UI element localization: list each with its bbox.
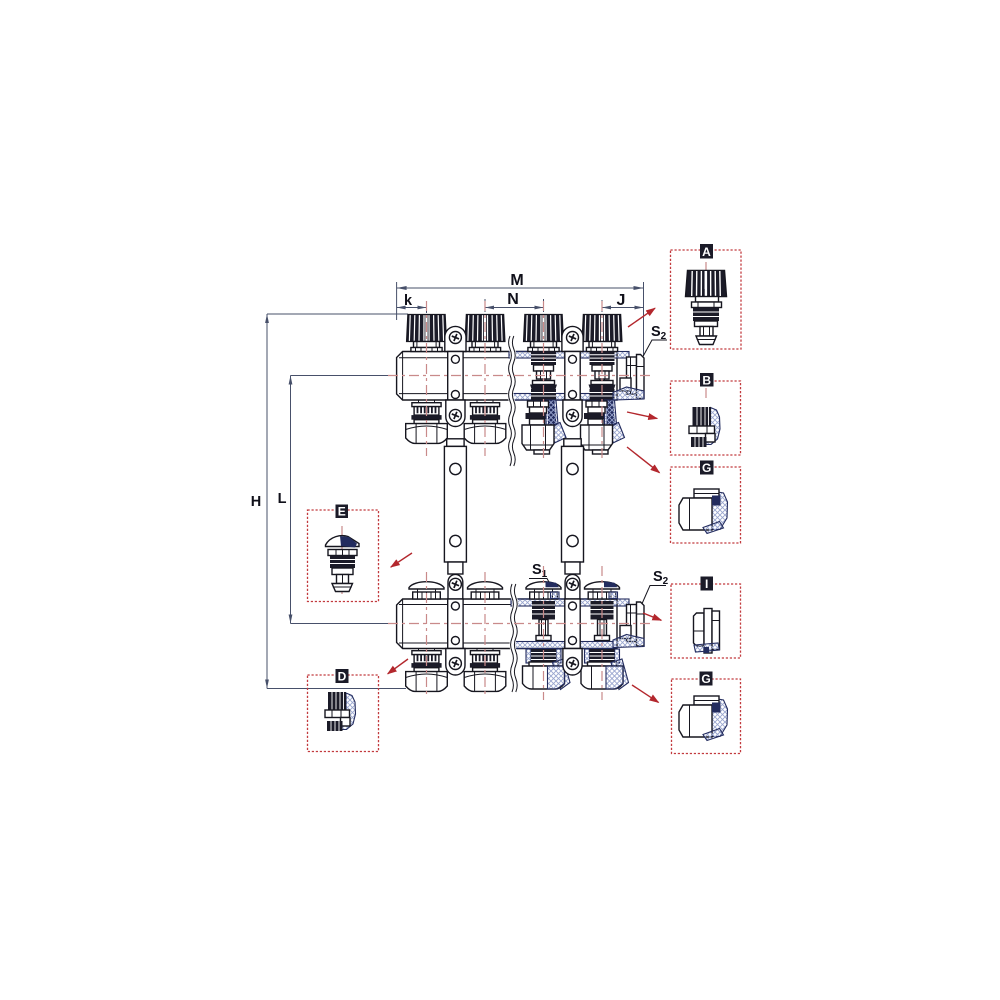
svg-text:L: L <box>278 491 287 507</box>
svg-text:G: G <box>702 461 711 475</box>
svg-text:B: B <box>702 373 711 387</box>
svg-text:k: k <box>404 293 413 309</box>
svg-text:I: I <box>705 577 708 591</box>
svg-text:H: H <box>251 494 261 510</box>
svg-text:E: E <box>338 504 346 518</box>
svg-text:A: A <box>702 245 711 259</box>
svg-text:M: M <box>510 272 523 289</box>
svg-text:J: J <box>617 292 626 309</box>
svg-text:N: N <box>507 291 519 308</box>
svg-text:G: G <box>701 672 710 686</box>
svg-text:D: D <box>338 669 347 683</box>
